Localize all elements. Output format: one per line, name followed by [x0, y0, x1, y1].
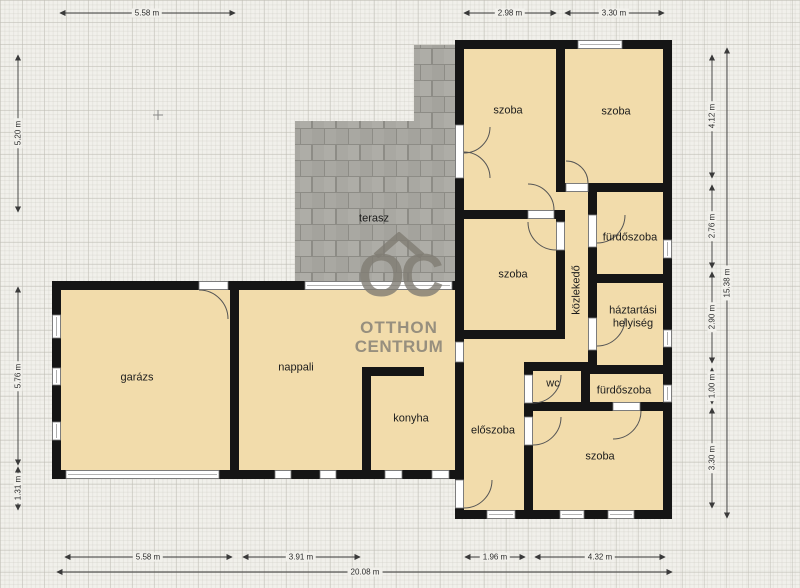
dim-label-bottom-2: 3.91 m [286, 553, 316, 562]
floorplan-page: { "rooms": { "garage": "garázs", "living… [0, 0, 800, 588]
dim-label-bottom-3: 1.96 m [480, 553, 510, 562]
dim-label-right-3: 2.90 m [708, 302, 717, 332]
dim-label-left-2: 5.76 m [14, 361, 23, 391]
dim-label-bottom-1: 5.58 m [133, 553, 163, 562]
room-label-garage: garázs [120, 372, 153, 385]
room-label-bedroom-top-left: szoba [493, 105, 522, 118]
room-label-bedroom-top-right: szoba [601, 106, 630, 119]
dim-label-right-4: 1.00 m [708, 371, 717, 401]
dim-label-right-5: 3.30 m [708, 443, 717, 473]
room-label-terrace: terasz [359, 213, 389, 226]
watermark-centrum: CENTRUM [349, 337, 449, 357]
room-label-utility: háztartási helyiség [598, 304, 668, 329]
room-label-bedroom-bottom: szoba [585, 451, 614, 464]
room-label-bathroom-lower: fürdőszoba [597, 385, 651, 398]
dim-label-left-1: 5.20 m [14, 118, 23, 148]
dim-label-left-3: 1.31 m [14, 473, 23, 503]
survey-cross [153, 110, 163, 120]
dim-label-right-1: 4.12 m [708, 101, 717, 131]
room-label-bathroom-upper: fürdőszoba [603, 232, 657, 245]
dim-label-top-3: 3.30 m [599, 9, 629, 18]
watermark-oc: OC [349, 246, 449, 306]
dim-label-right-2: 2.76 m [708, 211, 717, 241]
dim-label-bottom-4: 4.32 m [585, 553, 615, 562]
dim-label-right-total: 15.38 m [723, 266, 732, 301]
room-label-wc: wc [546, 378, 559, 391]
watermark-otthon: OTTHON [349, 318, 449, 338]
room-label-living: nappali [278, 362, 313, 375]
room-label-hallway: közlekedő [571, 265, 584, 315]
room-label-entry: előszoba [471, 425, 515, 438]
room-label-kitchen: konyha [393, 413, 428, 426]
dim-label-bottom-total: 20.08 m [348, 568, 383, 577]
dim-label-top-1: 5.58 m [132, 9, 162, 18]
dim-label-top-2: 2.98 m [495, 9, 525, 18]
room-label-bedroom-middle: szoba [498, 269, 527, 282]
